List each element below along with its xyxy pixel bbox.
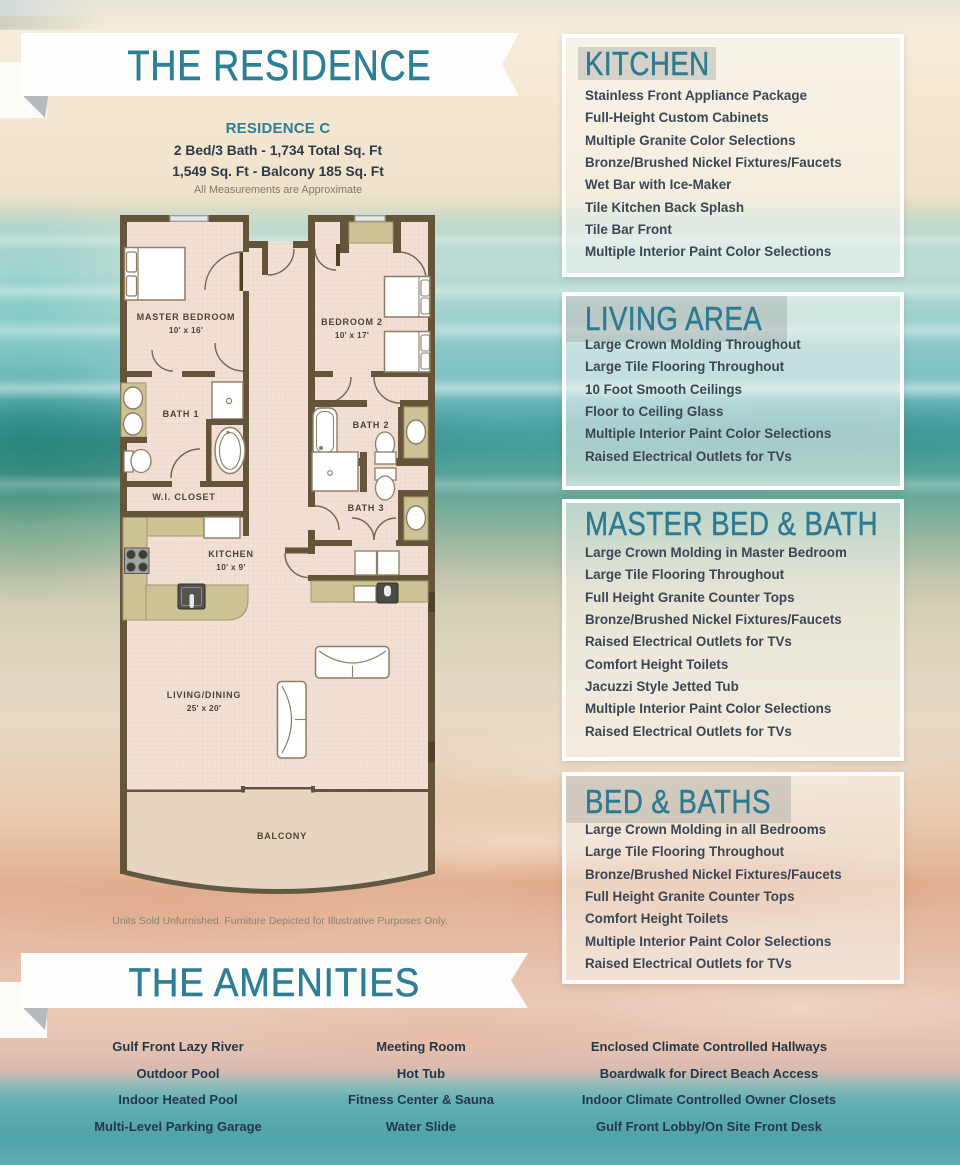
svg-text:BALCONY: BALCONY (257, 831, 307, 841)
svg-text:KITCHEN: KITCHEN (208, 549, 254, 559)
svg-text:BEDROOM 2: BEDROOM 2 (321, 317, 383, 327)
svg-text:10' x 17': 10' x 17' (335, 330, 369, 340)
svg-text:LIVING/DINING: LIVING/DINING (167, 690, 241, 700)
svg-text:25' x 20': 25' x 20' (187, 703, 221, 713)
svg-text:BATH 1: BATH 1 (163, 409, 200, 419)
svg-text:10' x 16': 10' x 16' (169, 325, 203, 335)
svg-text:MASTER BEDROOM: MASTER BEDROOM (137, 312, 236, 322)
svg-text:10' x 9': 10' x 9' (216, 562, 245, 572)
svg-text:BATH 2: BATH 2 (353, 420, 390, 430)
svg-text:W.I. CLOSET: W.I. CLOSET (152, 492, 215, 502)
svg-text:BATH 3: BATH 3 (348, 503, 385, 513)
